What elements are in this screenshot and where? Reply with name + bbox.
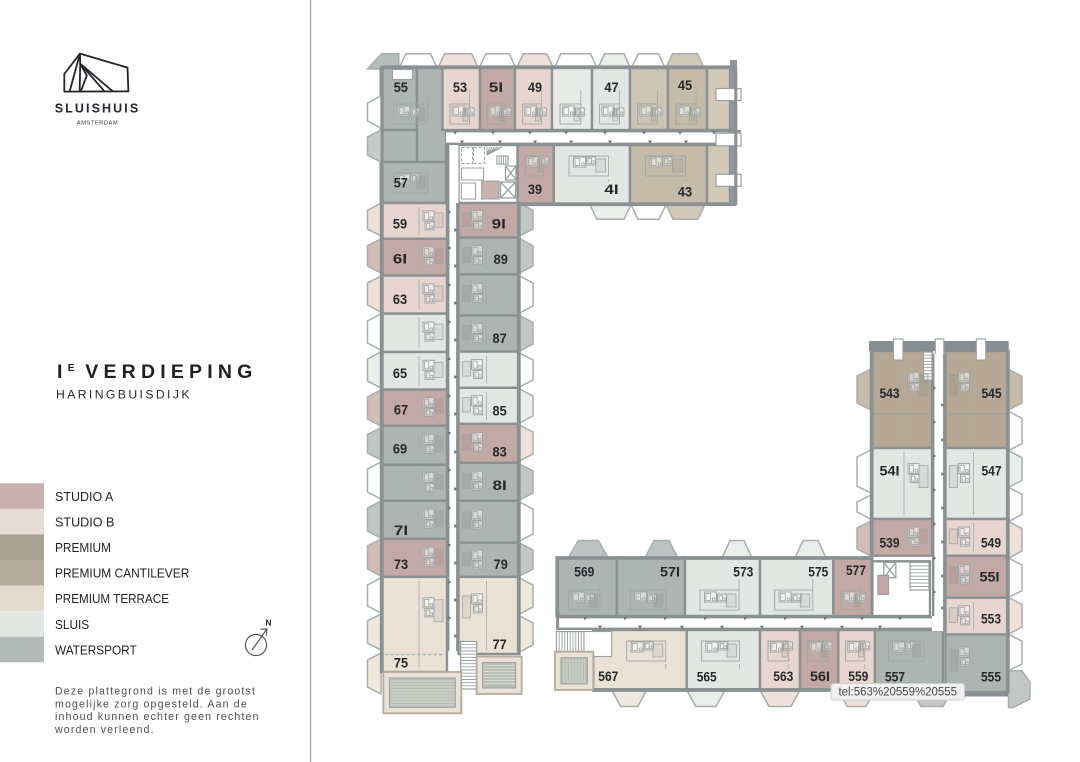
svg-text:539: 539 xyxy=(880,535,900,551)
svg-text:63: 63 xyxy=(393,291,407,307)
svg-text:45: 45 xyxy=(678,77,692,93)
svg-text:83: 83 xyxy=(493,444,507,460)
svg-text:8I: 8I xyxy=(493,477,507,493)
svg-text:55I: 55I xyxy=(980,569,1000,585)
svg-text:47: 47 xyxy=(604,79,618,95)
svg-text:49: 49 xyxy=(528,79,542,95)
svg-text:4I: 4I xyxy=(604,181,618,197)
svg-text:79: 79 xyxy=(494,556,508,572)
svg-text:STUDIO B: STUDIO B xyxy=(55,515,114,530)
svg-text:5I: 5I xyxy=(489,79,503,95)
svg-text:PREMIUM CANTILEVER: PREMIUM CANTILEVER xyxy=(55,566,189,581)
svg-text:67: 67 xyxy=(394,402,408,418)
svg-text:569: 569 xyxy=(574,564,594,580)
svg-text:PREMIUM TERRACE: PREMIUM TERRACE xyxy=(55,591,169,606)
svg-text:IE VERDIEPING: IE VERDIEPING xyxy=(57,361,258,383)
svg-text:inhoud kunnen echter geen rech: inhoud kunnen echter geen rechten xyxy=(55,711,260,723)
svg-text:557: 557 xyxy=(885,668,905,684)
svg-text:573: 573 xyxy=(733,564,753,580)
svg-text:69: 69 xyxy=(393,441,407,457)
svg-text:STUDIO A: STUDIO A xyxy=(55,489,114,504)
svg-text:547: 547 xyxy=(982,463,1002,479)
svg-text:worden verleend.: worden verleend. xyxy=(54,724,155,736)
svg-text:55: 55 xyxy=(394,79,408,95)
svg-text:9I: 9I xyxy=(492,215,506,231)
svg-text:545: 545 xyxy=(982,385,1002,401)
svg-text:53: 53 xyxy=(453,79,467,95)
svg-text:tel:563%20559%20555: tel:563%20559%20555 xyxy=(839,687,958,699)
svg-text:SLUISHUIS: SLUISHUIS xyxy=(55,102,141,116)
svg-text:73: 73 xyxy=(394,556,408,572)
svg-text:555: 555 xyxy=(981,668,1001,684)
svg-text:39: 39 xyxy=(528,181,542,197)
svg-text:89: 89 xyxy=(494,251,508,267)
svg-text:565: 565 xyxy=(697,669,717,685)
svg-text:PREMIUM: PREMIUM xyxy=(55,540,111,555)
svg-text:59: 59 xyxy=(393,215,407,231)
svg-text:87: 87 xyxy=(493,330,507,346)
svg-text:SLUIS: SLUIS xyxy=(55,617,89,632)
svg-text:56I: 56I xyxy=(810,668,830,684)
svg-text:567: 567 xyxy=(598,668,618,684)
svg-text:HARINGBUISDIJK: HARINGBUISDIJK xyxy=(56,388,192,402)
svg-text:mogelijke zorg opgesteld. Aan: mogelijke zorg opgesteld. Aan de xyxy=(55,698,248,710)
svg-text:85: 85 xyxy=(493,402,507,418)
svg-text:54I: 54I xyxy=(880,463,900,479)
svg-text:559: 559 xyxy=(848,668,868,684)
svg-text:AMSTERDAM: AMSTERDAM xyxy=(77,120,119,126)
svg-text:6I: 6I xyxy=(393,250,407,266)
svg-text:57I: 57I xyxy=(660,564,680,580)
svg-text:75: 75 xyxy=(394,654,408,670)
svg-text:43: 43 xyxy=(678,184,692,200)
svg-text:Deze plattegrond is met de gro: Deze plattegrond is met de grootst xyxy=(55,686,256,698)
svg-text:65: 65 xyxy=(393,365,407,381)
svg-text:77: 77 xyxy=(493,636,507,652)
svg-text:553: 553 xyxy=(981,611,1001,627)
svg-text:57: 57 xyxy=(394,174,408,190)
svg-text:N: N xyxy=(265,618,271,628)
svg-text:577: 577 xyxy=(846,562,866,578)
svg-text:549: 549 xyxy=(981,535,1001,551)
svg-text:543: 543 xyxy=(880,385,900,401)
svg-text:563: 563 xyxy=(773,668,793,684)
svg-text:WATERSPORT: WATERSPORT xyxy=(55,642,137,657)
svg-text:7I: 7I xyxy=(394,522,408,538)
svg-text:575: 575 xyxy=(808,564,828,580)
